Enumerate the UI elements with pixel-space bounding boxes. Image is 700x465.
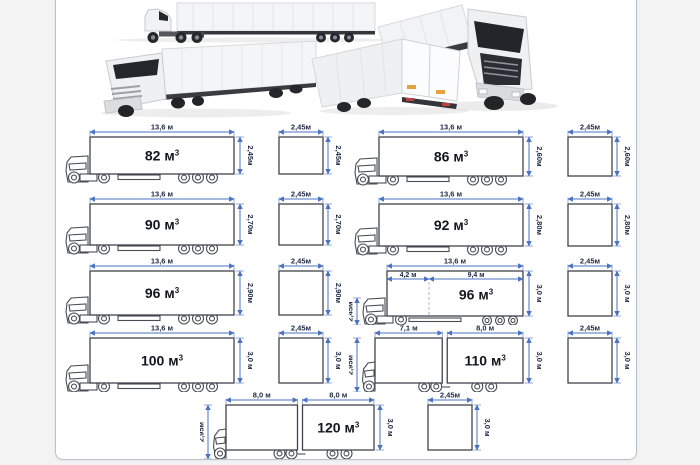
section-width-label: 2,45м <box>291 123 312 132</box>
cross-section-120m3: 2,45м3,0 м <box>422 391 492 459</box>
diagram-row-3: 13,6 м2,90м96 м3 2,45м2,90м 13,6 м4,2 м9… <box>56 257 636 324</box>
truck-capacity-diagram: 13,6 м2,80м92 м3 <box>349 190 557 258</box>
section-width-label: 2,45м <box>580 123 601 132</box>
semi-truck-rear-three-quarter-photo <box>308 35 480 117</box>
section-height-label: 2,60м <box>623 146 632 167</box>
length-label: 13,6 м <box>151 123 174 132</box>
cross-section-diagram: 2,45м2,90м <box>273 257 343 325</box>
truck-diagram-82m3: 13,6 м2,45м82 м3 <box>60 123 268 191</box>
truck-diagram-110m3: 7,1 м8,0 м3,0 м2,95м110 м3 <box>349 324 557 392</box>
cross-section-square <box>568 271 612 316</box>
cross-section-86m3: 2,45м2,60м <box>562 123 632 191</box>
cross-section-square <box>568 137 612 176</box>
truck-box <box>226 405 298 450</box>
volume-label: 92 м3 <box>434 217 469 233</box>
section-height-label: 3,0 м <box>483 418 492 437</box>
section-height-label: 2,80м <box>623 215 632 236</box>
trailer-length-label: 8,0 м <box>329 391 348 400</box>
height-label: 2,60м <box>535 146 544 167</box>
section-height-label: 2,45м <box>334 145 343 166</box>
diagram-row-5: 8,0 м8,0 м3,0 м2,95м120 м3 2,45м3,0 м <box>56 391 636 458</box>
cross-section-diagram: 2,45м3,0 м <box>562 257 632 325</box>
cross-section-82m3: 2,45м2,45м <box>273 123 343 191</box>
truck-capacity-diagram: 13,6 м2,90м96 м3 <box>60 257 268 325</box>
cross-section-square <box>568 204 612 246</box>
cab-height-label: 2,45м <box>349 301 355 322</box>
segment-length-label: 4,2 м <box>399 272 416 279</box>
section-width-label: 2,45м <box>291 190 312 199</box>
length-label: 13,6 м <box>440 190 463 199</box>
length-label: 13,6 м <box>151 324 174 333</box>
section-width-label: 2,45м <box>580 190 601 199</box>
semi-truck-front-three-quarter-photo <box>86 39 321 119</box>
height-label: 3,0 м <box>535 284 544 303</box>
volume-label: 100 м3 <box>141 353 184 369</box>
section-height-label: 3,0 м <box>623 351 632 370</box>
volume-label: 110 м3 <box>464 353 506 369</box>
height-label: 3,0 м <box>386 418 395 437</box>
section-width-label: 2,45м <box>580 324 601 333</box>
height-label: 2,70м <box>246 214 255 235</box>
cross-section-square <box>279 338 323 383</box>
cross-section-diagram: 2,45м3,0 м <box>422 391 492 459</box>
volume-label: 90 м3 <box>145 217 180 233</box>
cross-section-square <box>568 338 612 383</box>
panel-inner: 13,6 м2,45м82 м3 2,45м2,45м 13,6 м2,60м8… <box>56 1 636 459</box>
cross-section-96m3: 2,45м2,90м <box>273 257 343 325</box>
segment-length-label: 9,4 м <box>467 272 484 279</box>
truck-length-label: 7,1 м <box>399 324 418 333</box>
truck-diagram-100m3: 13,6 м3,0 м100 м3 <box>60 324 268 392</box>
section-width-label: 2,45м <box>291 257 312 266</box>
cross-section-square <box>279 204 323 245</box>
cross-section-square <box>279 137 323 174</box>
volume-label: 120 м3 <box>317 420 360 436</box>
height-label: 2,45м <box>246 145 255 166</box>
cross-section-diagram: 2,45м3,0 м <box>562 324 632 392</box>
truck-capacity-diagram: 8,0 м8,0 м3,0 м2,95м120 м3 <box>200 391 408 459</box>
height-label: 3,0 м <box>246 351 255 370</box>
truck-diagram-96m3-split: 13,6 м4,2 м9,4 м3,0 м2,45м96 м3 <box>349 257 557 325</box>
truck-diagram-86m3: 13,6 м2,60м86 м3 <box>349 123 557 191</box>
section-height-label: 3,0 м <box>623 284 632 303</box>
height-label: 2,90м <box>246 283 255 304</box>
truck-capacity-diagram: 13,6 м4,2 м9,4 м3,0 м2,45м96 м3 <box>349 257 557 325</box>
section-height-label: 2,90м <box>334 283 343 304</box>
volume-label: 82 м3 <box>145 148 180 164</box>
truck-length-label: 8,0 м <box>253 391 272 400</box>
trailer-length-label: 8,0 м <box>476 324 495 333</box>
truck-height-label: 2,95м <box>200 421 206 442</box>
cross-section-110m3: 2,45м3,0 м <box>562 324 632 392</box>
section-height-label: 2,70м <box>334 214 343 235</box>
diagram-grid: 13,6 м2,45м82 м3 2,45м2,45м 13,6 м2,60м8… <box>56 123 636 458</box>
volume-label: 96 м3 <box>145 285 180 301</box>
height-label: 3,0 м <box>535 351 544 370</box>
cross-section-100m3: 2,45м3,0 м <box>273 324 343 392</box>
cross-section-diagram: 2,45м2,45м <box>273 123 343 191</box>
diagram-row-1: 13,6 м2,45м82 м3 2,45м2,45м 13,6 м2,60м8… <box>56 123 636 190</box>
volume-label: 86 м3 <box>434 149 469 165</box>
truck-diagram-96m3: 13,6 м2,90м96 м3 <box>60 257 268 325</box>
cross-section-92m3: 2,45м2,80м <box>562 190 632 258</box>
diagram-row-2: 13,6 м2,70м90 м3 2,45м2,70м 13,6 м2,80м9… <box>56 190 636 257</box>
section-width-label: 2,45м <box>291 324 312 333</box>
cross-section-diagram: 2,45м3,0 м <box>273 324 343 392</box>
length-label: 13,6 м <box>440 123 463 132</box>
truck-photos-strip <box>56 1 636 121</box>
truck-capacity-diagram: 7,1 м8,0 м3,0 м2,95м110 м3 <box>349 324 557 392</box>
truck-diagram-90m3: 13,6 м2,70м90 м3 <box>60 190 268 258</box>
cross-section-96m3-split: 2,45м3,0 м <box>562 257 632 325</box>
truck-capacity-diagram: 13,6 м2,45м82 м3 <box>60 123 268 191</box>
section-height-label: 3,0 м <box>334 351 343 370</box>
length-label: 13,6 м <box>444 257 467 266</box>
diagram-row-4: 13,6 м3,0 м100 м3 2,45м3,0 м 7,1 м8,0 м3… <box>56 324 636 391</box>
cross-section-diagram: 2,45м2,80м <box>562 190 632 258</box>
cross-section-90m3: 2,45м2,70м <box>273 190 343 258</box>
truck-height-label: 2,95м <box>349 354 355 375</box>
truck-capacity-diagram: 13,6 м2,60м86 м3 <box>349 123 557 191</box>
truck-capacity-diagram: 13,6 м3,0 м100 м3 <box>60 324 268 392</box>
length-label: 13,6 м <box>151 257 174 266</box>
volume-label: 96 м3 <box>459 287 494 303</box>
length-label: 13,6 м <box>151 190 174 199</box>
section-width-label: 2,45м <box>580 257 601 266</box>
cross-section-diagram: 2,45м2,70м <box>273 190 343 258</box>
section-width-label: 2,45м <box>440 391 461 400</box>
content-panel: 13,6 м2,45м82 м3 2,45м2,45м 13,6 м2,60м8… <box>55 0 637 460</box>
cross-section-square <box>428 405 472 450</box>
cross-section-diagram: 2,45м2,60м <box>562 123 632 191</box>
height-label: 2,80м <box>535 215 544 236</box>
truck-diagram-92m3: 13,6 м2,80м92 м3 <box>349 190 557 258</box>
truck-diagram-120m3: 8,0 м8,0 м3,0 м2,95м120 м3 <box>200 391 408 459</box>
truck-box <box>375 338 442 383</box>
truck-capacity-diagram: 13,6 м2,70м90 м3 <box>60 190 268 258</box>
cross-section-square <box>279 271 323 315</box>
